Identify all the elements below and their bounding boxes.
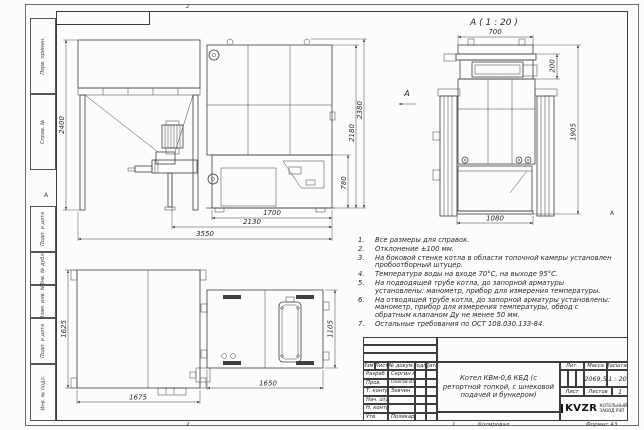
col-izm: Изм. [363,362,375,370]
fold-letter-left: А [44,192,48,199]
sheets-value: 1 [612,387,628,396]
name-prov: Онегов-Варежинский [388,379,415,388]
dim-1700: 1700 [263,209,281,217]
detail-view-drawing: А ( 1 : 20 ) А [390,12,630,230]
under-title-cell [437,412,560,421]
dim-1625: 1625 [60,320,68,338]
kvzr-logo-icon [561,404,563,413]
lit-cell [568,370,576,387]
margin-label: Взам. инв. № [40,285,46,318]
dim-1905: 1905 [570,123,578,141]
dim-2180: 2180 [348,124,356,142]
sheets-label: Листов [584,387,612,396]
note-item: 5.На подводящей трубе котла, до запорной… [358,280,614,295]
revision-row [363,345,437,353]
revision-row [363,353,437,362]
scale-value: 1 : 20 [607,370,628,387]
date-cell [426,379,437,388]
lit-cell [576,370,584,387]
col-data: Дата [426,362,437,370]
role-prov: Пров. [363,379,388,388]
margin-cell-inv-dubl: Инв. № дубл. [30,252,56,285]
dim-1650: 1650 [259,380,277,388]
lit-label: Лит. [560,362,584,370]
margin-cell-inv-podl: Инв. № подл. [30,364,56,421]
col-dokum: № докум. [388,362,415,370]
name-nachotd [388,396,415,405]
note-number: 4. [358,271,375,278]
zone-number-top: 2 [186,4,190,10]
dim-1080: 1080 [486,215,504,223]
drawing-sheet: 2 2 1 Копировал Формат А3 А А Перв. прим… [0,0,644,430]
footer-copied-label: Копировал [478,422,509,428]
note-text: На подводящей трубе котла, до запорной а… [375,280,614,295]
sign-cell [415,396,426,405]
view-arrow-label: А [403,89,409,98]
dim-700: 700 [488,28,502,36]
dim-780: 780 [340,176,348,190]
mass-value: 2069,5 [584,370,607,387]
note-item: 1.Все размеры для справок. [358,237,614,244]
note-number: 6. [358,297,375,319]
kvzr-logo-text: KVZR [565,403,597,414]
note-number: 1. [358,237,375,244]
mass-label: Масса [584,362,607,370]
margin-cell-podp-data-1: Подп. и дата [30,206,56,252]
sign-cell [415,404,426,413]
note-text: На боковой стенке котла в области топочн… [375,255,614,270]
top-left-stamp-cell [56,11,150,25]
technical-notes: 1.Все размеры для справок. 2.Отклонение … [358,237,614,330]
company-logo-cell: KVZR КОТЕЛЬНЫЙ ЗАВОД РЭП [560,396,628,421]
name-utv: Поликарпова [388,413,415,422]
margin-label: Инв. № подл. [40,375,46,410]
col-podp: Подп. [415,362,426,370]
margin-label: Инв. № дубл. [40,252,46,285]
zone-number-bottom-right: 1 [452,422,456,428]
detail-view-label: А ( 1 : 20 ) [469,18,518,28]
role-tkontr: Т. контр. [363,387,388,396]
date-cell [426,413,437,422]
dim-1105: 1105 [327,320,335,338]
note-number: 2. [358,246,375,253]
sign-cell [415,413,426,422]
dim-1675: 1675 [129,394,147,402]
date-cell [426,370,437,379]
sheet-label: Лист [560,387,584,396]
dim-200: 200 [549,59,557,73]
front-view-drawing: 2400 780 2180 2380 1700 2130 3550 [58,28,368,248]
name-razrab: Сергин А.В. [388,370,415,379]
note-item: 6.На отводящей трубе котла, до запорной … [358,297,614,319]
note-text: На отводящей трубе котла, до запорной ар… [375,297,614,319]
note-text: Остальные требования по ОСТ 108.030.133-… [375,321,614,328]
margin-cell-sprav-no: Справ. № [30,94,56,170]
margin-label: Справ. № [40,120,46,144]
note-number: 3. [358,255,375,270]
drawing-title: Котел КВм-0,6 КБД (с ретортной топкой, с… [437,362,560,412]
role-nkontr: Н. контр. [363,404,388,413]
kvzr-logo-subtext: КОТЕЛЬНЫЙ ЗАВОД РЭП [600,404,627,414]
name-tkontr: Зевчин [388,387,415,396]
sign-cell [415,387,426,396]
note-item: 2.Отклонение ±100 мм. [358,246,614,253]
scale-label: Масштаб [607,362,628,370]
role-nachotd: Нач. отд. [363,396,388,405]
margin-label: Подп. и дата [40,212,46,246]
dim-2130: 2130 [243,218,261,226]
dim-2400: 2400 [58,116,66,134]
note-item: 3.На боковой стенке котла в области топо… [358,255,614,270]
revision-row [363,337,437,345]
role-utv: Утв. [363,413,388,422]
note-item: 7.Остальные требования по ОСТ 108.030.13… [358,321,614,328]
margin-cell-perv-primen: Перв. примен. [30,18,56,94]
margin-label: Подп. и дата [40,324,46,358]
col-list: Лист [375,362,388,370]
zone-number-bottom-left: 2 [186,422,190,428]
note-text: Отклонение ±100 мм. [375,246,614,253]
note-number: 5. [358,280,375,295]
dim-2380: 2380 [356,101,364,119]
sign-cell [415,379,426,388]
name-nkontr [388,404,415,413]
margin-cell-vzam-inv: Взам. инв. № [30,285,56,318]
top-view-drawing: 1625 1675 1105 1650 [58,252,368,418]
note-number: 7. [358,321,375,328]
date-cell [426,404,437,413]
note-text: Температура воды на входе 70°С, на выход… [375,271,614,278]
dim-3550: 3550 [196,230,214,238]
role-razrab: Разраб. [363,370,388,379]
date-cell [426,387,437,396]
footer-format-label: Формат А3 [586,422,617,428]
date-cell [426,396,437,405]
note-text: Все размеры для справок. [375,237,614,244]
lit-cell [560,370,568,387]
note-item: 4.Температура воды на входе 70°С, на вых… [358,271,614,278]
margin-cell-podp-data-2: Подп. и дата [30,318,56,364]
logo-line2: ЗАВОД РЭП [600,409,627,414]
margin-label: Перв. примен. [40,37,46,75]
document-designation-cell [437,337,628,362]
sign-cell [415,370,426,379]
